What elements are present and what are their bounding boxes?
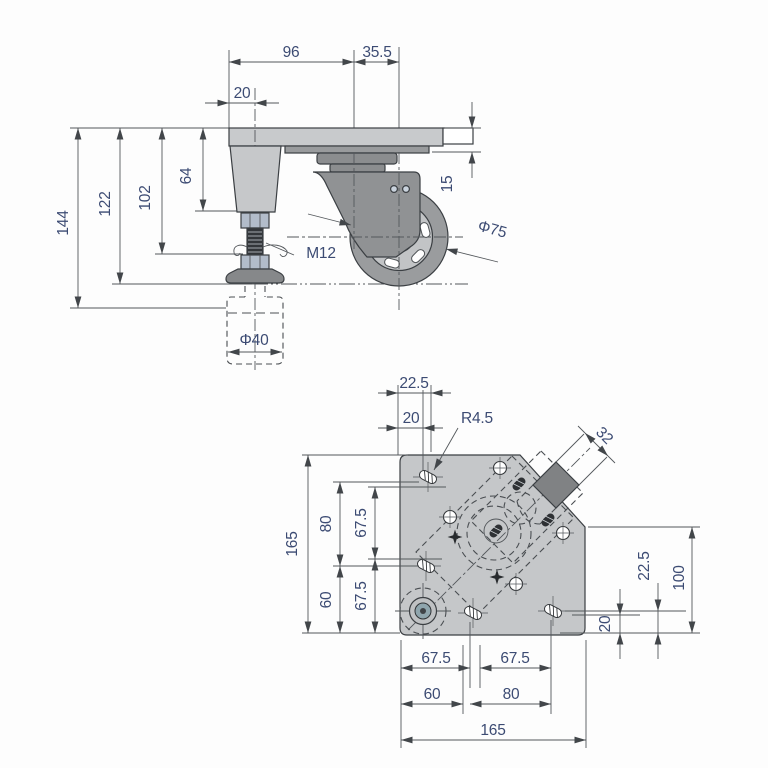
- fork-rivet: [391, 186, 398, 193]
- dim-wheel-diameter: Φ75: [476, 218, 508, 242]
- hex-nut-upper: [241, 213, 269, 228]
- dim-right-20: 20: [597, 615, 614, 632]
- dim-left-80: 80: [318, 515, 335, 532]
- dim-foot-diameter: Φ40: [239, 332, 269, 349]
- foot-pad: [226, 269, 284, 283]
- fork-rivet: [403, 186, 410, 193]
- dim-caster-offset: 35.5: [362, 44, 391, 61]
- dim-top-22-5: 22.5: [399, 375, 428, 392]
- dim-to-ground: 122: [97, 191, 114, 216]
- caster-top-plate: [285, 146, 429, 153]
- dim-plate-width: 96: [283, 44, 300, 61]
- dim-bottom-67-left: 67.5: [421, 650, 450, 667]
- dim-left-67-upper: 67.5: [353, 508, 370, 537]
- mounting-plate-side: [229, 128, 443, 146]
- dim-bottom-165: 165: [480, 722, 505, 739]
- dim-block-height: 64: [178, 167, 195, 184]
- swivel-disc-lower: [330, 164, 385, 172]
- dim-edge-to-leg: 20: [234, 85, 251, 102]
- dim-right-100: 100: [671, 565, 688, 591]
- adjuster-body: [230, 146, 281, 212]
- dim-right-22-5: 22.5: [636, 551, 653, 580]
- technical-drawing-page: 96 35.5 20 64 102 122 144 15 M12 Φ75 Φ40: [0, 0, 768, 768]
- dim-overall-height: 144: [55, 210, 72, 236]
- side-view: 96 35.5 20 64 102 122 144 15 M12 Φ75 Φ40: [55, 44, 508, 370]
- dim-corner-radius: R4.5: [461, 410, 493, 427]
- dim-bottom-67-right: 67.5: [500, 650, 529, 667]
- plate-extension: [443, 128, 473, 144]
- bottom-view: 22.5 20 R4.5 32 165 80 60 67.5 67.5 22.5…: [284, 375, 700, 748]
- caster-technical-drawing: 96 35.5 20 64 102 122 144 15 M12 Φ75 Φ40: [0, 0, 768, 768]
- dim-bottom-60: 60: [424, 686, 441, 703]
- dim-top-20: 20: [403, 410, 420, 427]
- dim-left-67-lower: 67.5: [353, 581, 370, 610]
- hex-nut-lower: [241, 255, 269, 269]
- swivel-disc-upper: [317, 153, 397, 164]
- label-thread-m12: M12: [306, 245, 336, 262]
- dim-to-clip: 102: [137, 185, 154, 210]
- dim-left-165: 165: [284, 531, 301, 556]
- dim-bottom-80: 80: [503, 686, 520, 703]
- dim-plate-thickness: 15: [439, 176, 456, 193]
- dim-left-60: 60: [318, 591, 335, 608]
